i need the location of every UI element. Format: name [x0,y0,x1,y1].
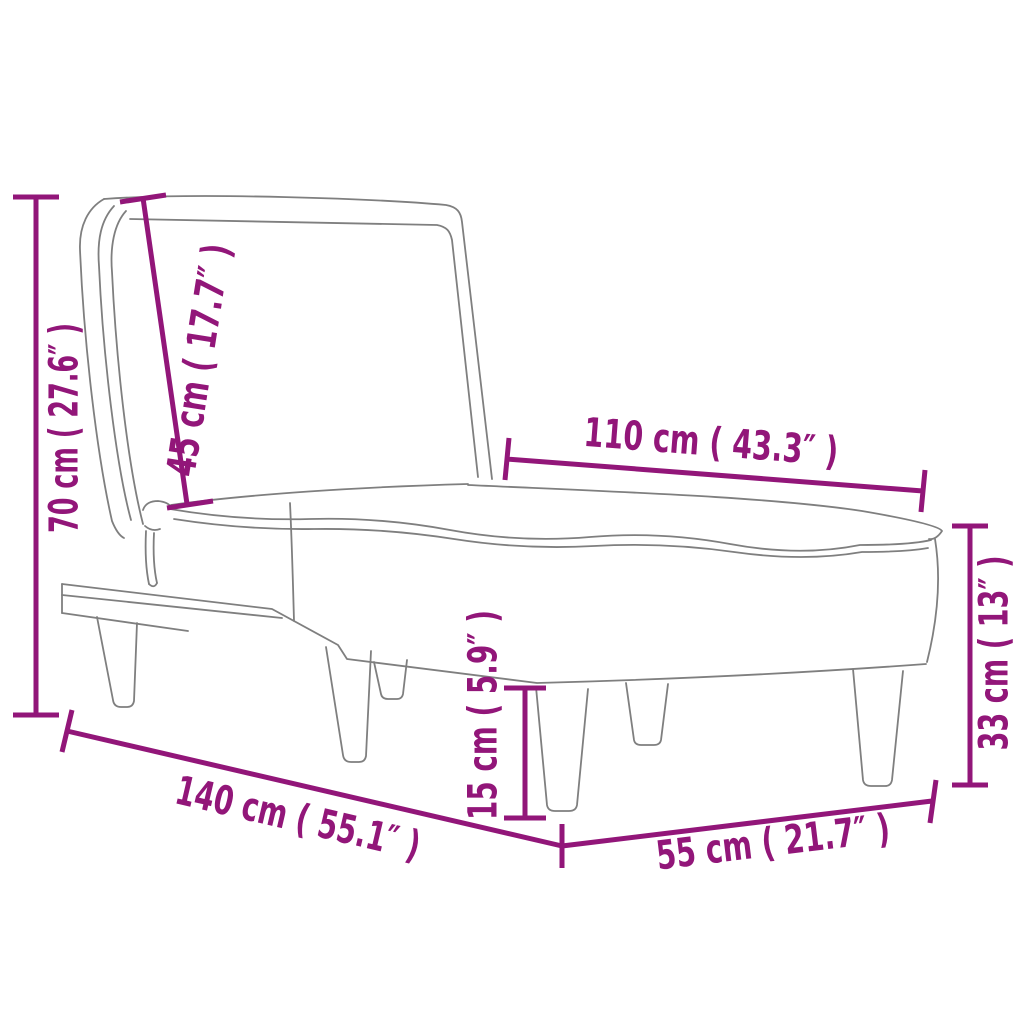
dimension-labels: 70 cm ( 27.6″ ) 45 cm ( 17.7″ ) 110 cm (… [42,240,1018,879]
dimension-label-total-height: 70 cm ( 27.6″ ) [42,323,88,533]
diagram-canvas: 70 cm ( 27.6″ ) 45 cm ( 17.7″ ) 110 cm (… [0,0,1024,1024]
seat-front-left-edge [290,503,294,621]
mattress-seam-upper [170,509,931,551]
leg-front-left [326,647,371,762]
leg-front-center [536,687,588,811]
leg-rear-center [626,683,668,745]
dimension-label-total-width: 55 cm ( 21.7″ ) [654,806,893,880]
mattress-far-edge [468,485,942,539]
mattress-right-edge [927,539,938,662]
backrest-tail-line-2 [154,533,157,583]
leg-front-right [853,669,903,786]
dimension-label-leg-height: 15 cm ( 5.9″ ) [461,610,507,820]
dimension-line-leg-height [504,688,546,818]
dimension-label-backrest-length: 45 cm ( 17.7″ ) [158,240,240,479]
backrest-bottom-junction [171,484,468,505]
backrest-tail-line-1 [146,531,149,584]
mattress-corner-wrinkle [145,526,160,530]
leg-platform-left [97,617,137,707]
platform-bottom-edge [62,613,188,631]
backrest-tail-bottom [149,583,157,586]
backrest-side-band-2 [112,211,143,524]
mattress-left-corner-hook [143,501,171,510]
dimension-diagram: 70 cm ( 27.6″ ) 45 cm ( 17.7″ ) 110 cm (… [0,0,1024,1024]
dimension-label-seat-height: 33 cm ( 13″ ) [972,556,1018,751]
